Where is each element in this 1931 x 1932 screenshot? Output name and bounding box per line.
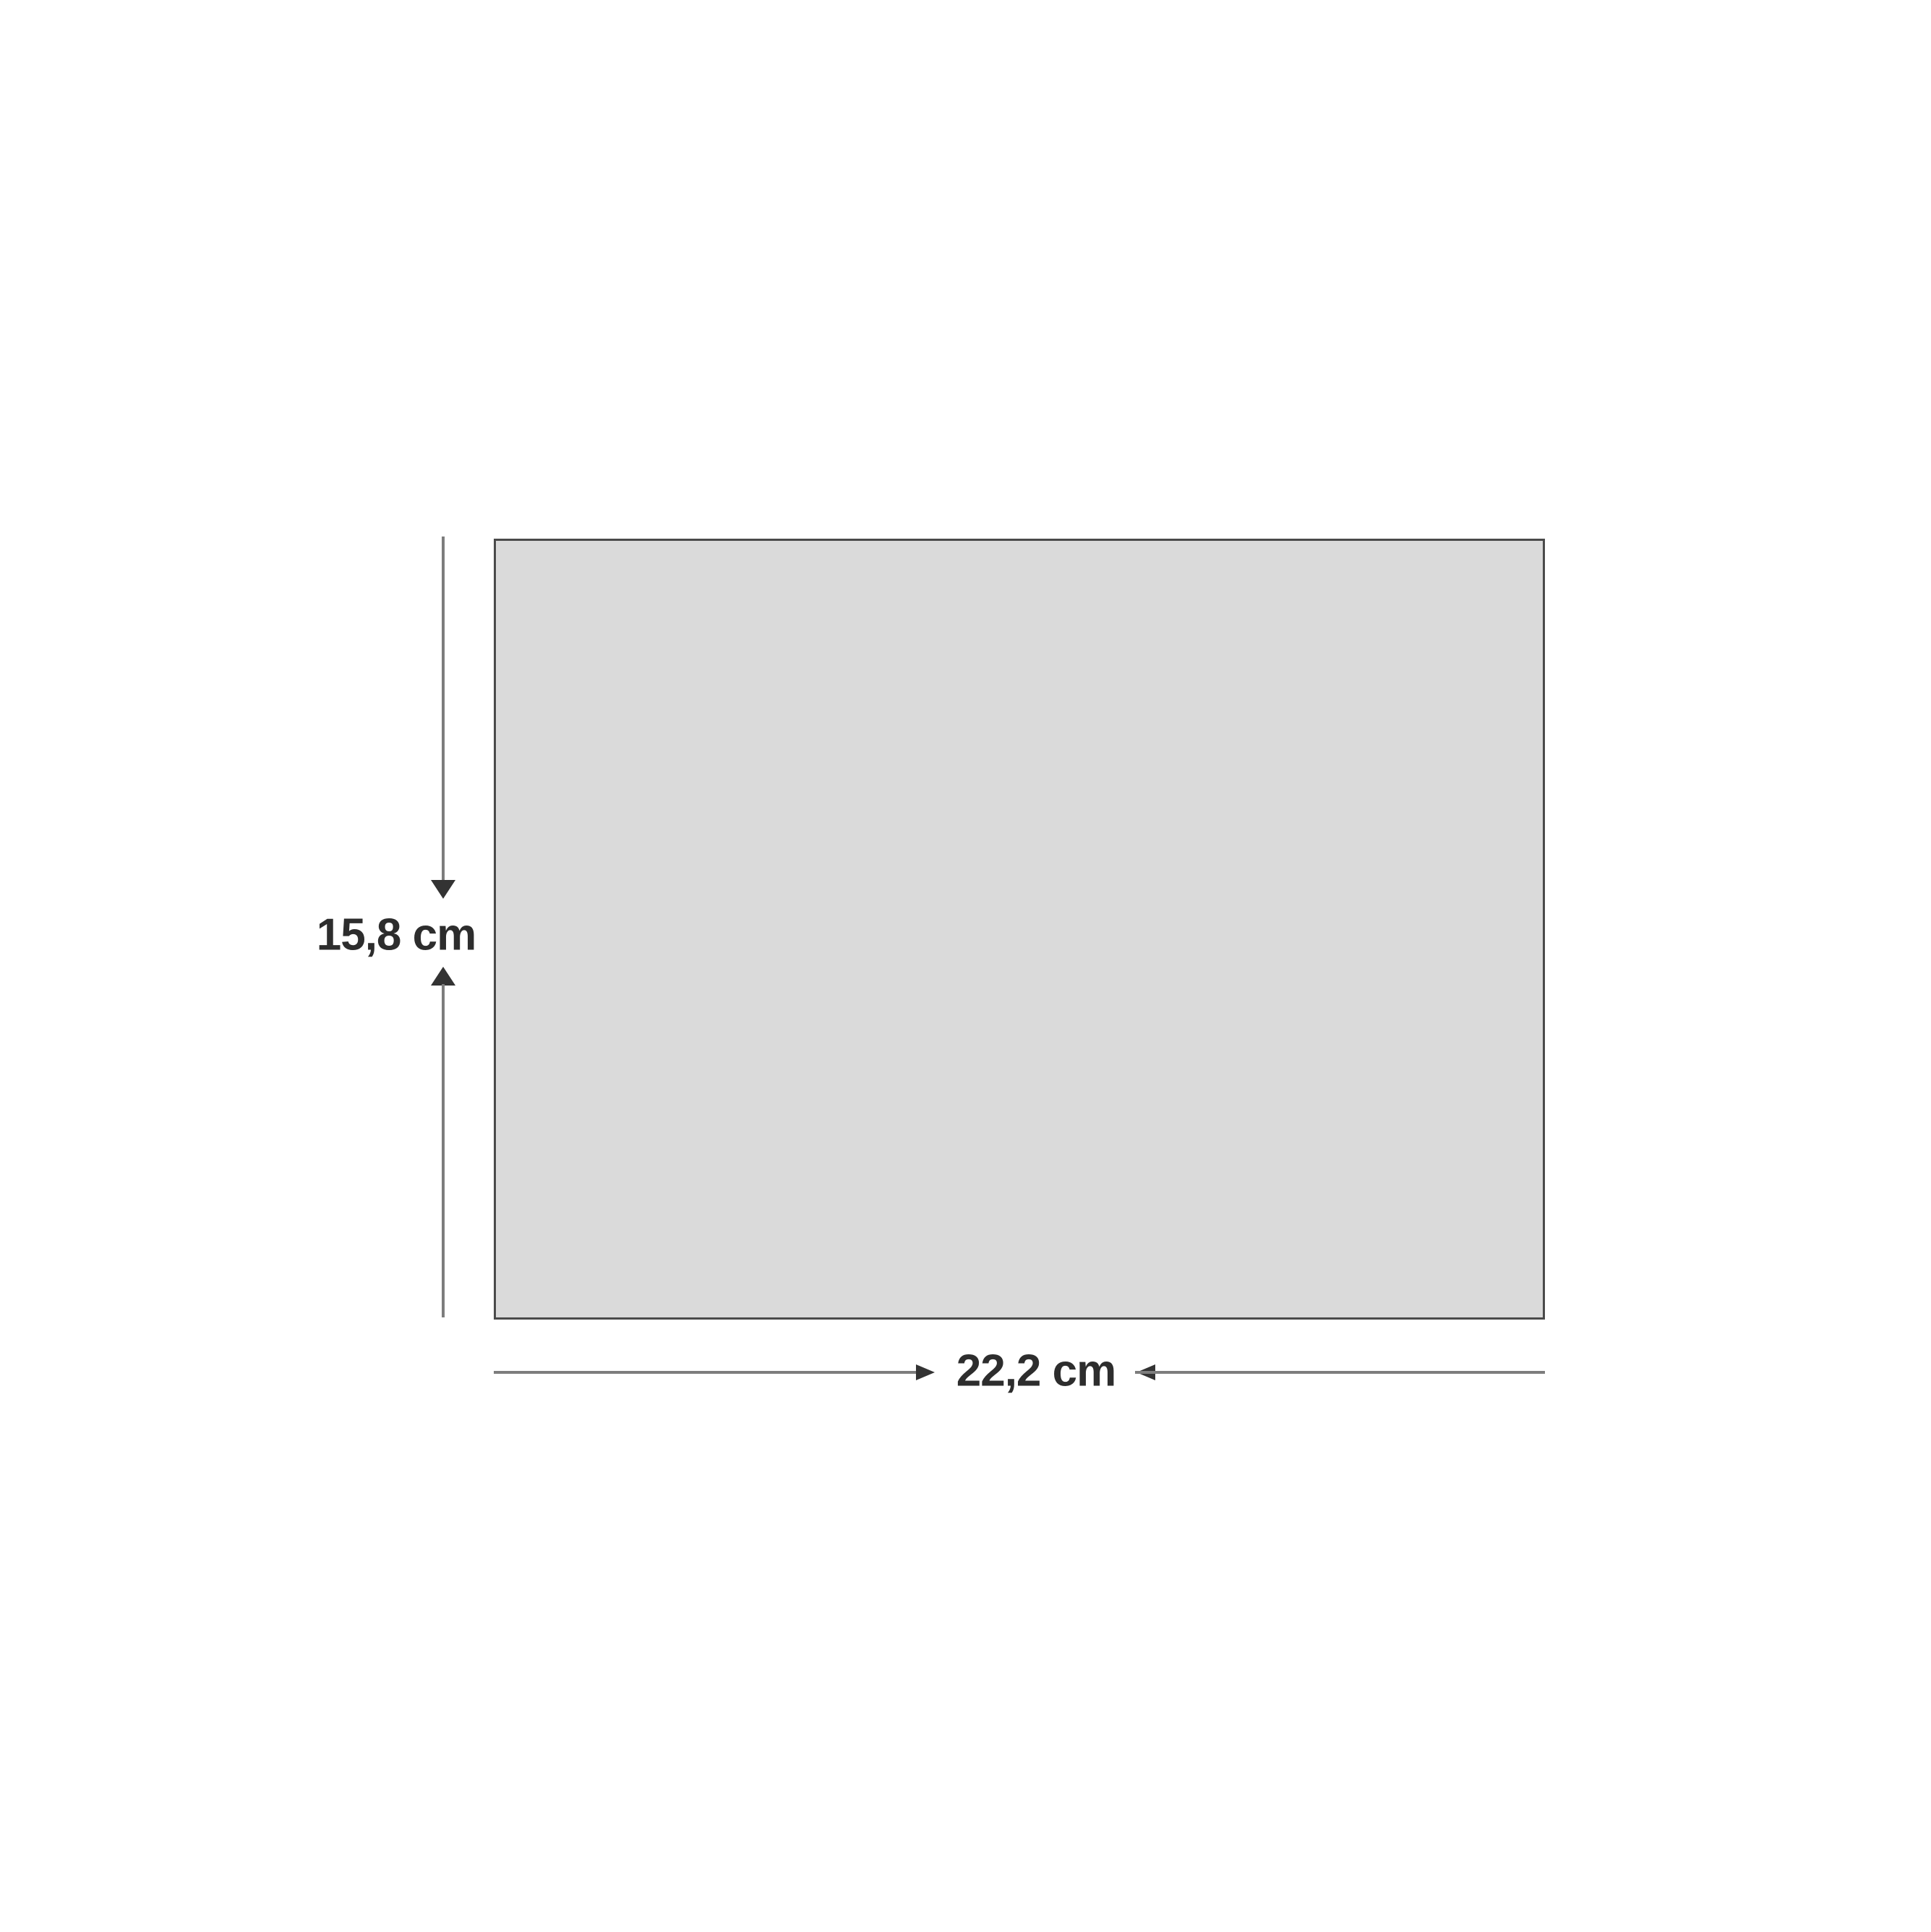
height-dimension-line-bottom	[442, 984, 445, 1317]
width-dimension-line-left	[494, 1371, 917, 1374]
diagram-canvas: 15,8 cm 22,2 cm	[0, 0, 1931, 1932]
width-dimension-line-right	[1135, 1371, 1545, 1374]
arrow-up-icon	[431, 967, 455, 986]
width-label: 22,2 cm	[956, 1346, 1116, 1397]
height-dimension-line-top	[442, 537, 445, 881]
arrow-right-icon	[916, 1364, 935, 1380]
measured-rectangle	[494, 539, 1545, 1320]
arrow-down-icon	[431, 880, 455, 899]
height-label: 15,8 cm	[317, 910, 476, 961]
